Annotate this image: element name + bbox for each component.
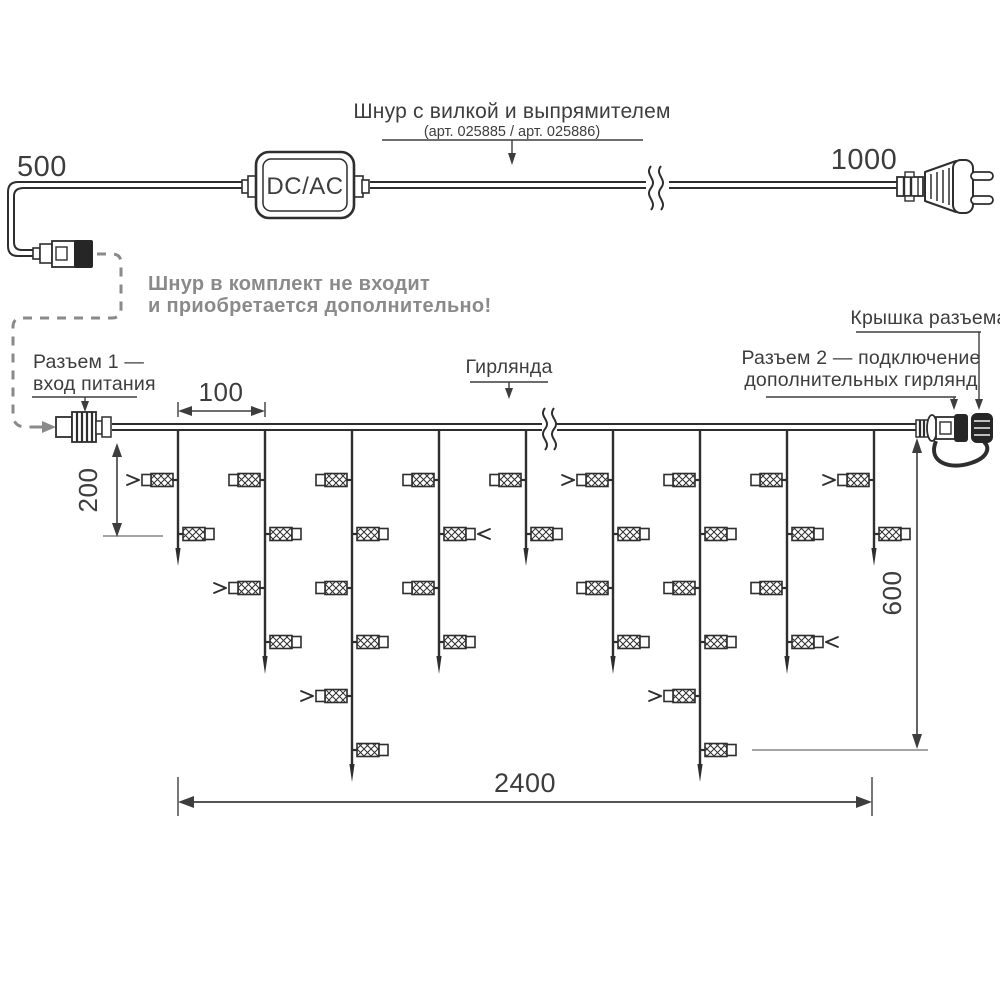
led-bulb-icon (142, 474, 178, 487)
led-bulb-icon (229, 474, 265, 487)
led-bulb-icon (229, 582, 265, 595)
adapter-label: DC/AC (266, 173, 343, 200)
garland-label: Гирлянда (465, 356, 552, 378)
led-bulb-icon (751, 474, 787, 487)
led-bulb-icon (316, 690, 352, 703)
note-line1: Шнур в комплект не входит (148, 273, 430, 295)
led-bulb-icon (178, 528, 214, 541)
led-bulb-icon (490, 474, 526, 487)
flash-led-arrow-icon (826, 637, 838, 647)
led-bulb-icon (700, 528, 736, 541)
garland-connector1-icon (56, 412, 111, 442)
flash-led-arrow-icon (127, 475, 139, 485)
icicle-drop (649, 430, 736, 782)
dim-2400-value: 2400 (494, 768, 556, 798)
led-bulb-icon (613, 636, 649, 649)
dim-100-value: 100 (199, 377, 244, 407)
led-bulb-icon (403, 474, 439, 487)
led-bulb-icon (265, 636, 301, 649)
led-bulb-icon (787, 528, 823, 541)
led-bulb-icon (751, 582, 787, 595)
led-bulb-icon (439, 528, 475, 541)
icicle-drop (751, 430, 838, 674)
led-bulb-icon (526, 528, 562, 541)
cord-pointer (382, 140, 643, 165)
cord-subtitle: (арт. 025885 / арт. 025886) (424, 124, 600, 140)
connector2-pointer (766, 397, 958, 410)
led-bulb-icon (874, 528, 910, 541)
led-bulb-icon (577, 582, 613, 595)
icicle-drop (562, 430, 649, 674)
icicle-drop (214, 430, 301, 674)
led-bulb-icon (316, 582, 352, 595)
led-bulb-icon (664, 690, 700, 703)
cord-connector-icon (33, 240, 93, 268)
dim-200 (103, 443, 163, 537)
power-plug-icon (897, 160, 993, 213)
garland-diagram: DC/AC 500 1000 Шнур с вилкой и выпрямите… (0, 0, 1000, 1000)
led-bulb-icon (439, 636, 475, 649)
cord-length-left: 500 (17, 151, 67, 183)
led-bulb-icon (265, 528, 301, 541)
connector1-label-line1: Разъем 1 — (33, 351, 144, 373)
flash-led-arrow-icon (649, 691, 661, 701)
led-bulb-icon (403, 582, 439, 595)
led-bulb-icon (352, 636, 388, 649)
led-bulb-icon (316, 474, 352, 487)
dashed-route (13, 254, 121, 433)
diagram-canvas: DC/AC 500 1000 Шнур с вилкой и выпрямите… (0, 0, 1000, 1000)
cord-title: Шнур с вилкой и выпрямителем (353, 100, 670, 123)
wire-break-icon (543, 408, 556, 450)
icicle-drop (403, 430, 490, 674)
icicle-drops (127, 430, 910, 782)
connector1-label-line2: вход питания (33, 373, 156, 395)
led-bulb-icon (577, 474, 613, 487)
cord-length-right: 1000 (831, 144, 898, 176)
flash-led-arrow-icon (823, 475, 835, 485)
led-bulb-icon (352, 528, 388, 541)
flash-led-arrow-icon (562, 475, 574, 485)
icicle-drop (490, 430, 562, 566)
icicle-drop (301, 430, 388, 782)
led-bulb-icon (613, 528, 649, 541)
led-bulb-icon (700, 636, 736, 649)
cord-break-icon (649, 166, 663, 210)
flash-led-arrow-icon (214, 583, 226, 593)
connector-cap-icon (971, 413, 993, 443)
icicle-drop (127, 430, 214, 566)
cap-label: Крышка разъема (850, 307, 1000, 329)
connector2-label-line1: Разъем 2 — подключение (741, 347, 980, 369)
dim-600-value: 600 (877, 571, 907, 616)
connector2-label-line2: дополнительных гирлянд (744, 369, 978, 391)
led-bulb-icon (700, 744, 736, 757)
led-bulb-icon (352, 744, 388, 757)
power-cord (8, 182, 898, 256)
icicle-drop (823, 430, 910, 566)
note-line2: и приобретается дополнительно! (148, 295, 491, 317)
led-bulb-icon (838, 474, 874, 487)
garland-wire (112, 424, 918, 430)
garland-pointer (470, 382, 548, 399)
dim-200-value: 200 (73, 468, 103, 513)
flash-led-arrow-icon (301, 691, 313, 701)
connector1-pointer (32, 397, 137, 412)
flash-led-arrow-icon (478, 529, 490, 539)
led-bulb-icon (664, 474, 700, 487)
led-bulb-icon (787, 636, 823, 649)
led-bulb-icon (664, 582, 700, 595)
